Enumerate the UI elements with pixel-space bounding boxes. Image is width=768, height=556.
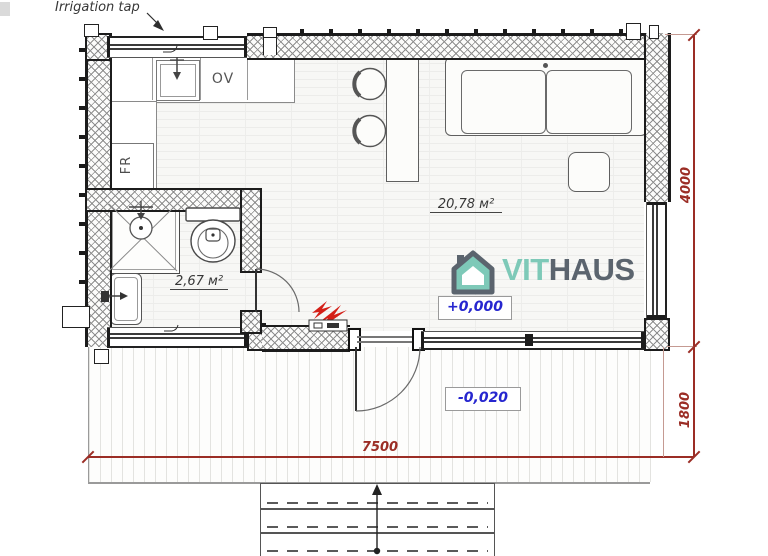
- bathroom-door-leaf: [255, 269, 257, 312]
- bathroom-wall-right: [240, 188, 262, 273]
- dim-line-bottom: [88, 456, 694, 458]
- window-cap: [421, 332, 424, 348]
- fridge-label: FR: [119, 147, 135, 183]
- exterior-fixture: [62, 306, 90, 328]
- window-mullion: [525, 334, 533, 346]
- sofa-cushion-right: [546, 70, 632, 134]
- roof-tab: [626, 23, 641, 40]
- bar-table: [386, 58, 419, 182]
- vithaus-logo: VITHAUS: [450, 249, 660, 297]
- window-cap: [107, 328, 110, 346]
- roof-tab: [649, 25, 659, 39]
- dim-house-depth: 4000: [679, 155, 695, 215]
- counter-divider: [152, 54, 153, 100]
- bath-sink-basin: [114, 277, 138, 321]
- level-terrace: -0,020: [445, 387, 521, 411]
- stair-hidden-edge: [267, 502, 488, 504]
- logo-text-vit: VIT: [502, 252, 549, 287]
- leader-line: [147, 13, 159, 25]
- bathroom-wall-top: [85, 188, 262, 212]
- main-room-area-label: 20,78 м²: [430, 197, 502, 213]
- bathroom-area-label: 2,67 м²: [170, 274, 228, 290]
- window-cap: [641, 332, 644, 348]
- entrance-door-leaf: [355, 347, 357, 411]
- bathroom-wall-post: [240, 310, 262, 334]
- dim-ext-right-vert: [663, 347, 664, 457]
- sofa-center-dot: [543, 63, 548, 68]
- vithaus-wordmark: VITHAUS: [502, 251, 635, 289]
- dim-overall-width: 7500: [340, 440, 420, 455]
- window-glass: [107, 337, 247, 339]
- oven-label: OV: [201, 71, 245, 87]
- irrigation-tap-label: Irrigation tap: [55, 0, 140, 15]
- window-glass: [107, 333, 247, 335]
- roof-tab: [263, 27, 277, 38]
- window-cap: [647, 202, 665, 205]
- wall-right: [644, 33, 671, 202]
- floor-plan-canvas: OV FR: [0, 0, 768, 556]
- stair-hidden-edge: [267, 550, 488, 552]
- shower-tray-inner: [112, 207, 176, 270]
- window-cap: [107, 38, 110, 57]
- window-glass: [107, 44, 247, 46]
- siding-ticks-left: [79, 48, 85, 338]
- print-artifact: [0, 2, 10, 16]
- logo-text-haus: HAUS: [549, 252, 635, 287]
- vithaus-house-icon: [450, 249, 496, 297]
- wall-top-post: [263, 36, 277, 55]
- bathroom-window: [107, 327, 247, 348]
- window-glass: [107, 48, 247, 50]
- terrace-deck: [88, 347, 651, 482]
- kitchen-sink-basin: [160, 64, 196, 97]
- side-table: [568, 152, 610, 192]
- stairs: [260, 483, 495, 556]
- leader-arrowhead: [153, 20, 164, 31]
- irrigation-tap-fitting: [203, 26, 218, 40]
- kitchen-window: [107, 36, 247, 58]
- stair-tread: [261, 532, 494, 534]
- stair-tread: [261, 508, 494, 510]
- door-threshold: [357, 336, 412, 338]
- siding-ticks-top: [300, 29, 640, 34]
- living-window: [421, 331, 644, 350]
- counter-divider: [247, 54, 248, 100]
- wall-bottom-entry: [262, 325, 350, 352]
- door-threshold: [357, 341, 412, 343]
- sofa-cushion-left: [461, 70, 546, 134]
- roof-tab: [84, 24, 99, 37]
- wall-top: [247, 33, 665, 60]
- dim-terrace-depth: 1800: [678, 380, 694, 440]
- stair-hidden-edge: [267, 526, 488, 528]
- deck-post: [94, 349, 109, 364]
- level-interior: +0,000: [438, 296, 512, 320]
